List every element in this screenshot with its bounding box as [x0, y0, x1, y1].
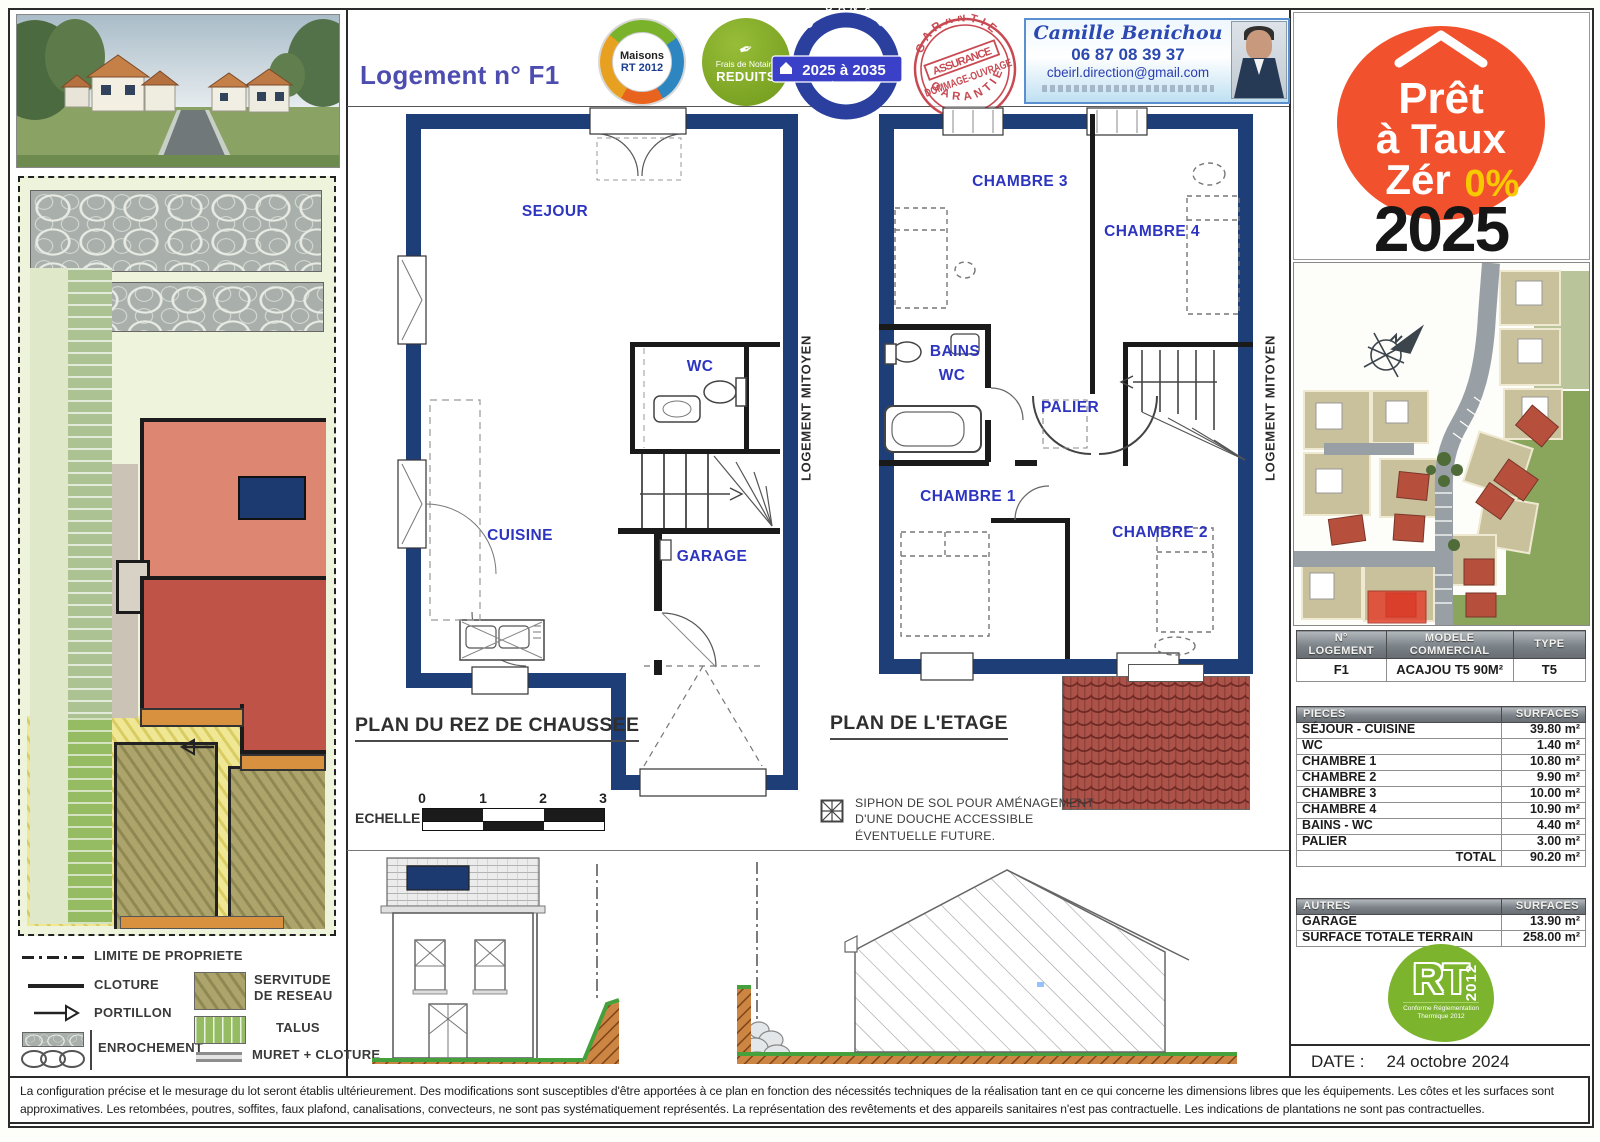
site-plot-plan — [18, 176, 336, 936]
room-label-garage: GARAGE — [677, 548, 747, 566]
table-row: CHAMBRE 110.80 m² — [1297, 754, 1586, 770]
medal-line1: Maisons — [620, 50, 664, 62]
notaire-line2: REDUITS — [716, 69, 776, 84]
date-box: DATE : 24 octobre 2024 — [1291, 1044, 1590, 1078]
etage-plan-title: PLAN DE L'ETAGE — [830, 712, 1008, 740]
room-label-chambre3: CHAMBRE 3 — [972, 173, 1068, 191]
siphon-note: SIPHON DE SOL POUR AMÉNAGEMENT D'UNE DOU… — [855, 795, 1094, 844]
party-wall-label-ground: LOGEMENT MITOYEN — [799, 335, 814, 481]
enrochement-swatch-bar — [22, 1032, 84, 1047]
legend-label: LIMITE DE PROPRIETE — [94, 948, 243, 963]
room-label-chambre4: CHAMBRE 4 — [1104, 223, 1200, 241]
legend: LIMITE DE PROPRIETE CLOTURE PORTILLON EN… — [14, 944, 342, 1070]
contact-name: Camille Benichou — [1026, 23, 1230, 45]
scale-tick: 0 — [418, 790, 426, 806]
garage-roof-tiles — [1062, 676, 1250, 810]
contact-fineprint — [1042, 85, 1214, 92]
ptz-logo: Prêt à Taux Zér 0% 2025 — [1293, 12, 1590, 260]
table-row: F1ACAJOU T5 90M²T5 — [1297, 659, 1586, 682]
room-label-bains: BAINS — [930, 343, 980, 361]
contact-phone: 06 87 08 39 37 — [1026, 45, 1230, 65]
rt2012-medal-badge: Maisons RT 2012 — [600, 20, 684, 104]
houses-photo — [16, 14, 340, 168]
legend-label: TALUS — [276, 1020, 320, 1035]
legend-label: SERVITUDE DE RESEAU — [254, 972, 344, 1005]
table-row: GARAGE13.90 m² — [1297, 914, 1586, 930]
legend-label: ENROCHEMENT — [98, 1040, 203, 1055]
contact-card: Camille Benichou 06 87 08 39 37 cbeirl.d… — [1024, 18, 1290, 104]
rt-year: 2012 — [1463, 964, 1480, 1001]
table-row: BAINS - WC4.40 m² — [1297, 818, 1586, 834]
enrochement-bracket — [90, 1030, 92, 1070]
plot-house-navy-feature — [238, 476, 306, 520]
room-label-chambre1: CHAMBRE 1 — [920, 488, 1016, 506]
elevation-rule — [347, 850, 1289, 851]
siphon-icon — [820, 799, 844, 823]
table-row: WC1.40 m² — [1297, 738, 1586, 754]
muret-swatch — [196, 1052, 242, 1062]
rt-letters: RT — [1413, 960, 1469, 998]
portillon-arrow — [168, 738, 214, 756]
surfaces-table: PIECES SURFACES SÉJOUR - CUISINE39.80 m²… — [1296, 706, 1586, 867]
site-map — [1293, 262, 1590, 626]
divider-right — [1289, 8, 1291, 1076]
room-label-bains-wc: WC — [939, 367, 966, 385]
echelle-label: ECHELLE : — [355, 810, 429, 826]
room-label-chambre2: CHAMBRE 2 — [1112, 524, 1208, 542]
logement-table: N°LOGEMENT MODELECOMMERCIAL TYPE F1ACAJO… — [1296, 630, 1586, 682]
legend-label: PORTILLON — [94, 1005, 172, 1020]
room-label-wc: WC — [687, 358, 714, 376]
agent-portrait — [1231, 21, 1287, 99]
scale-tick: 3 — [599, 790, 607, 806]
plot-talus-strip-lower — [68, 718, 112, 924]
etage-porch-opening — [1128, 664, 1204, 682]
plot-terrace-c — [120, 916, 284, 929]
plot-enrochement-band2 — [78, 282, 324, 332]
room-label-palier: PALIER — [1041, 399, 1099, 417]
plot-talus-strip — [68, 268, 112, 718]
plot-side-strip — [30, 268, 70, 924]
houses-photo-render — [17, 15, 339, 167]
party-wall-label-etage: LOGEMENT MITOYEN — [1263, 335, 1278, 481]
plot-servitude-a — [114, 742, 218, 929]
plot-house-step — [240, 704, 326, 754]
autres-table: AUTRES SURFACES GARAGE13.90 m²SURFACE TO… — [1296, 898, 1586, 947]
ptz-year: 2025 — [1374, 193, 1509, 259]
plot-terrace-b — [240, 754, 326, 771]
document-page: LIMITE DE PROPRIETE CLOTURE PORTILLON EN… — [0, 0, 1600, 1142]
notaire-line1: Frais de Notaire — [716, 59, 776, 69]
scale-bar-row1 — [422, 808, 605, 822]
ground-floor-plan-drawing — [392, 100, 812, 800]
divider-left — [346, 8, 348, 1076]
contact-email: cbeirl.direction@gmail.com — [1026, 65, 1230, 82]
scale-tick: 1 — [479, 790, 487, 806]
plot-terrace-a — [140, 708, 244, 727]
garantie-banner-text: 2025 à 2035 — [802, 62, 885, 79]
page-title: Logement n° F1 — [360, 60, 560, 91]
table-row: PALIER3.00 m² — [1297, 834, 1586, 850]
legend-label: CLOTURE — [94, 977, 159, 992]
rt2012-logo: RT 2012 Conforme Réglementation Thermiqu… — [1388, 944, 1494, 1042]
plot-house-lower — [140, 576, 326, 712]
disclaimer-text: La configuration précise et le mesurage … — [8, 1076, 1590, 1124]
enrochement-swatch-ellipses — [20, 1048, 86, 1070]
talus-swatch — [194, 1016, 246, 1044]
ground-plan-title: PLAN DU REZ DE CHAUSSEE — [355, 714, 639, 742]
scale-bar-row2 — [422, 821, 605, 831]
cloture-swatch — [28, 984, 84, 988]
table-row: CHAMBRE 310.00 m² — [1297, 786, 1586, 802]
medal-line2: RT 2012 — [621, 62, 663, 74]
table-row: CHAMBRE 29.90 m² — [1297, 770, 1586, 786]
scale-tick: 2 — [539, 790, 547, 806]
elevations-drawing — [362, 854, 1242, 1064]
portillon-swatch — [32, 1004, 80, 1022]
table-row: SÉJOUR - CUISINE39.80 m² — [1297, 722, 1586, 738]
ptz-word2: à Taux — [1376, 115, 1507, 162]
quill-icon: ✒ — [737, 39, 756, 60]
rt-subtitle: Conforme Réglementation Thermique 2012 — [1403, 1002, 1479, 1022]
room-label-cuisine: CUISINE — [487, 527, 553, 545]
room-label-sejour: SEJOUR — [522, 203, 588, 221]
date-label: DATE : — [1311, 1052, 1365, 1072]
limite-swatch — [22, 956, 84, 959]
table-row: CHAMBRE 410.90 m² — [1297, 802, 1586, 818]
total-row: TOTAL 90.20 m² — [1297, 850, 1586, 866]
plot-enrochement-band — [30, 190, 322, 272]
date-value: 24 octobre 2024 — [1387, 1052, 1510, 1072]
servitude-swatch — [194, 972, 246, 1010]
plot-servitude-b — [228, 766, 325, 929]
